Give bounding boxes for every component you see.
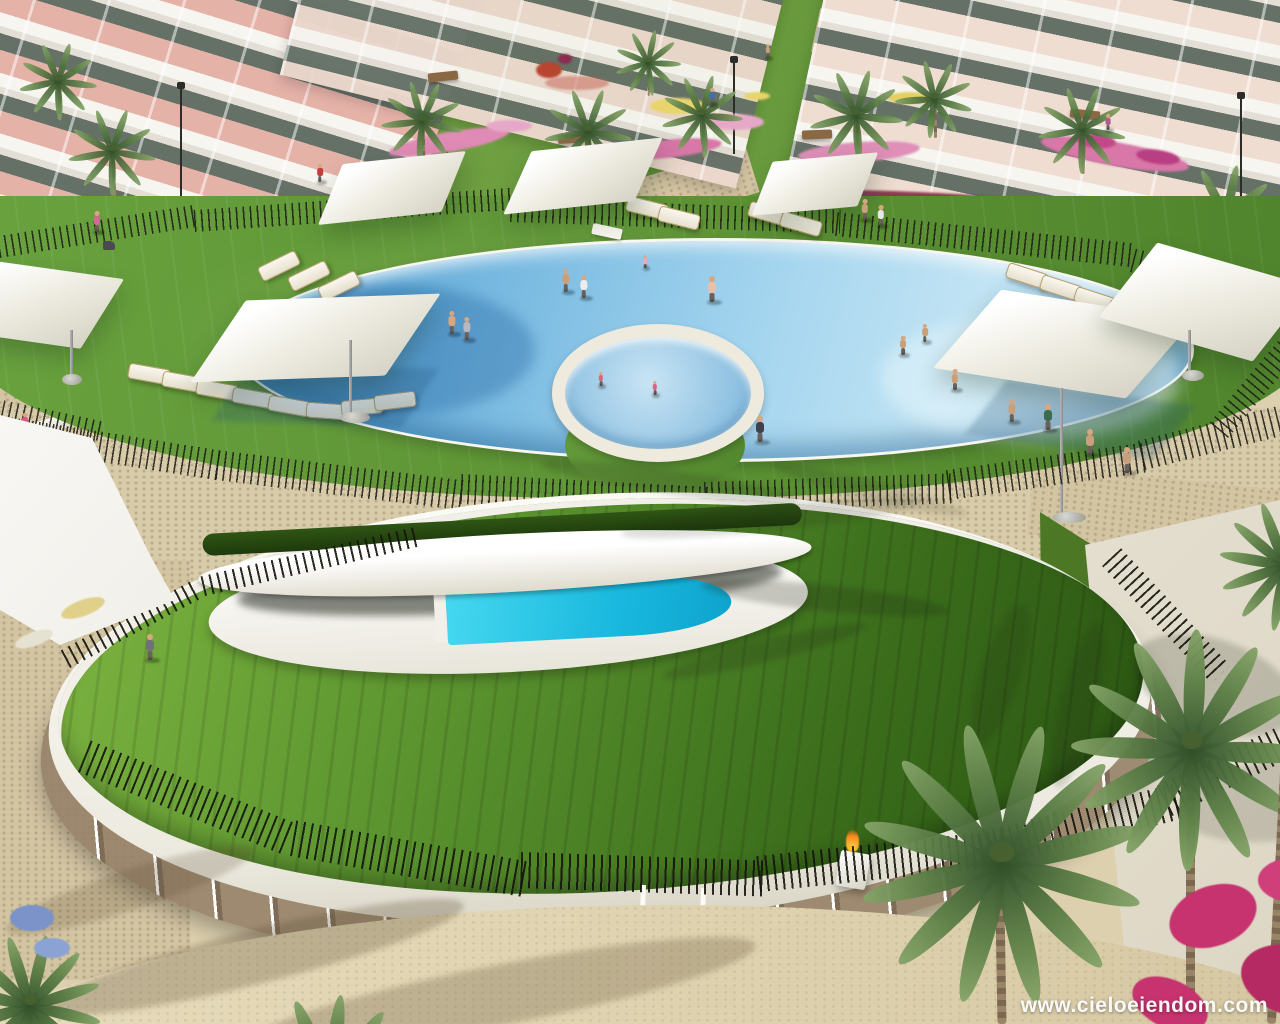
person-body — [952, 374, 958, 383]
person-figure — [92, 211, 102, 232]
flower-bed — [536, 62, 562, 78]
person-figure — [144, 634, 156, 660]
person-body — [1086, 435, 1094, 446]
person-figure — [561, 269, 572, 292]
person-body — [756, 422, 764, 433]
flower-bed — [486, 120, 532, 132]
person-shadow — [1008, 420, 1021, 425]
palm-crown-center — [418, 115, 426, 121]
parasol-pole — [349, 340, 352, 414]
palm-crown-center — [931, 93, 938, 99]
person-body — [878, 210, 884, 219]
flower-bed — [34, 938, 70, 958]
person-shadow — [709, 102, 718, 107]
person-shadow — [877, 224, 889, 229]
person-body — [1044, 410, 1052, 421]
person-shadow — [643, 266, 650, 271]
person-figure — [706, 276, 718, 302]
lamp-post — [733, 62, 735, 154]
person-figure — [921, 324, 929, 342]
person-shadow — [145, 658, 159, 663]
person-body — [1008, 404, 1015, 414]
lamp-post — [1240, 98, 1242, 204]
person-shadow — [580, 296, 593, 301]
person-shadow — [1085, 453, 1099, 458]
stroller — [103, 241, 115, 250]
person-shadow — [861, 218, 873, 223]
person-shadow — [951, 388, 963, 393]
person-figure — [598, 372, 605, 386]
person-figure — [316, 164, 324, 182]
palm-crown-center — [55, 75, 62, 81]
person-figure — [860, 199, 870, 220]
palm-crown-center — [24, 995, 37, 1005]
person-body — [463, 322, 470, 332]
person-shadow — [1043, 428, 1057, 433]
render-canvas: www.cieloeiendom.com — [0, 0, 1280, 1024]
person-figure — [1121, 447, 1133, 473]
person-figure — [754, 416, 766, 442]
person-shadow — [922, 340, 932, 345]
parasol-base — [340, 412, 370, 423]
lamp-post — [180, 88, 182, 206]
person-figure — [1042, 404, 1054, 430]
parasol-base — [62, 374, 82, 385]
person-figure — [1104, 114, 1111, 130]
person-shadow — [448, 332, 461, 337]
parasol-base — [1052, 512, 1086, 523]
person-shadow — [707, 300, 721, 305]
flower-bed — [545, 76, 609, 90]
flower-bed — [744, 92, 770, 100]
person-shadow — [1105, 128, 1114, 133]
person-body — [580, 280, 587, 290]
palm-crown-center — [698, 109, 706, 115]
person-body — [922, 328, 928, 336]
person-shadow — [463, 338, 476, 343]
parasol-pole — [70, 330, 73, 376]
flower-bed — [10, 905, 54, 931]
person-body — [1106, 118, 1111, 125]
person-shadow — [1122, 471, 1136, 476]
watermark: www.cieloeiendom.com — [1021, 994, 1268, 1018]
person-body — [562, 274, 569, 284]
person-body — [900, 340, 906, 348]
lens-wood-deck — [297, 590, 438, 651]
person-figure — [652, 381, 659, 395]
person-figure — [876, 205, 886, 226]
person-figure — [899, 336, 908, 356]
person-shadow — [317, 180, 327, 185]
person-shadow — [562, 290, 575, 295]
person-figure — [447, 311, 458, 334]
person-body — [708, 282, 716, 293]
person-body — [1123, 453, 1131, 464]
parasol-pole — [1188, 330, 1191, 372]
person-figure — [708, 88, 715, 104]
person-figure — [642, 255, 648, 268]
person-figure — [1084, 429, 1096, 455]
garden-bench — [802, 129, 832, 139]
person-shadow — [755, 440, 769, 445]
palm-crown-center — [1181, 731, 1203, 749]
person-body — [146, 640, 154, 651]
flower-bed — [558, 54, 572, 64]
person-body — [317, 168, 323, 176]
person-figure — [462, 317, 473, 340]
person-figure — [950, 369, 960, 390]
person-body — [94, 216, 100, 225]
parasol-base — [1182, 370, 1204, 381]
person-figure — [765, 44, 772, 58]
person-body — [448, 316, 455, 326]
parasol-pole — [1060, 388, 1063, 516]
person-shadow — [93, 230, 105, 235]
person-figure — [1007, 399, 1018, 422]
person-figure — [579, 275, 590, 298]
person-body — [862, 204, 868, 213]
person-body — [710, 92, 715, 99]
